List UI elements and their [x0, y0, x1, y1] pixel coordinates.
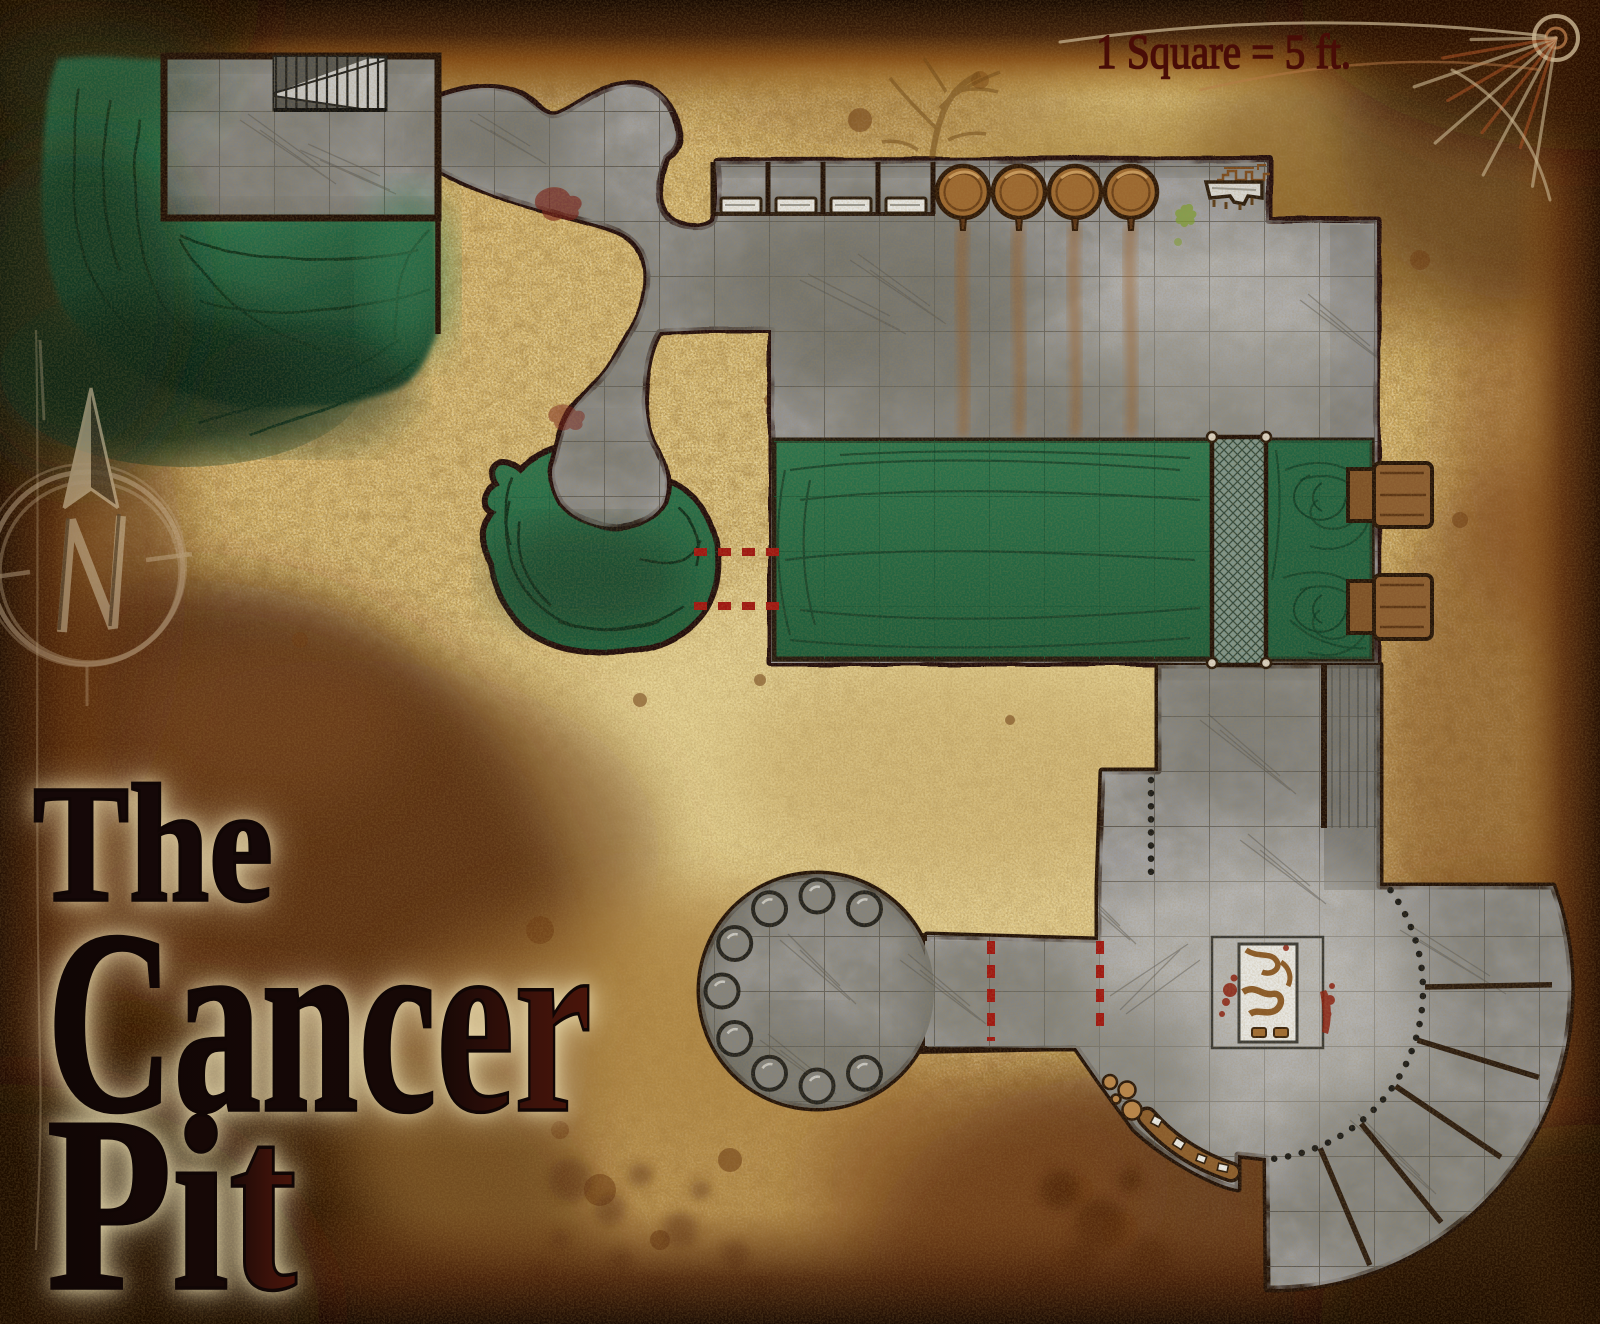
svg-text:1 Square = 5 ft.: 1 Square = 5 ft. [1096, 24, 1351, 79]
svg-text:Pit: Pit [47, 1066, 297, 1324]
